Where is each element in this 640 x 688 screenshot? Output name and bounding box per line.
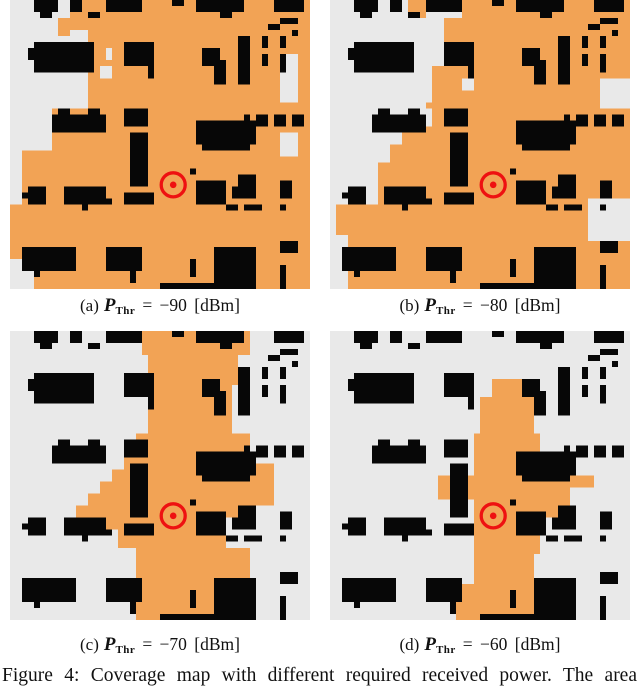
power-symbol: PThr: [424, 634, 455, 655]
power-symbol: PThr: [424, 295, 455, 316]
figure-caption: Figure 4: Coverage map with different re…: [2, 663, 637, 688]
panel-label-c: (c): [80, 635, 99, 654]
power-subscript: Thr: [115, 305, 135, 317]
coverage-map-c: [10, 331, 310, 620]
figure-4: (a)PThr= −90 [dBm] (b)PThr= −80 [dBm] (c…: [0, 0, 640, 688]
map-svg: [330, 331, 630, 620]
map-svg: [10, 331, 310, 620]
panel-label-a: (a): [80, 296, 99, 315]
panel-caption-d: (d)PThr= −60 [dBm]: [330, 634, 630, 656]
power-symbol: PThr: [104, 295, 135, 316]
power-subscript: Thr: [436, 644, 456, 656]
coverage-map-a: [10, 0, 310, 289]
coverage-map-d: [330, 331, 630, 620]
panel-caption-a: (a)PThr= −90 [dBm]: [10, 295, 310, 317]
power-subscript: Thr: [115, 644, 135, 656]
power-symbol: PThr: [104, 634, 135, 655]
panel-caption-b: (b)PThr= −80 [dBm]: [330, 295, 630, 317]
threshold-value-a: = −90 [dBm]: [142, 295, 240, 315]
threshold-value-b: = −80 [dBm]: [463, 295, 561, 315]
map-svg: [330, 0, 630, 289]
panel-caption-c: (c)PThr= −70 [dBm]: [10, 634, 310, 656]
threshold-value-d: = −60 [dBm]: [463, 634, 561, 654]
power-subscript: Thr: [436, 305, 456, 317]
coverage-map-b: [330, 0, 630, 289]
threshold-value-c: = −70 [dBm]: [142, 634, 240, 654]
panel-label-d: (d): [400, 635, 420, 654]
map-svg: [10, 0, 310, 289]
panel-label-b: (b): [400, 296, 420, 315]
